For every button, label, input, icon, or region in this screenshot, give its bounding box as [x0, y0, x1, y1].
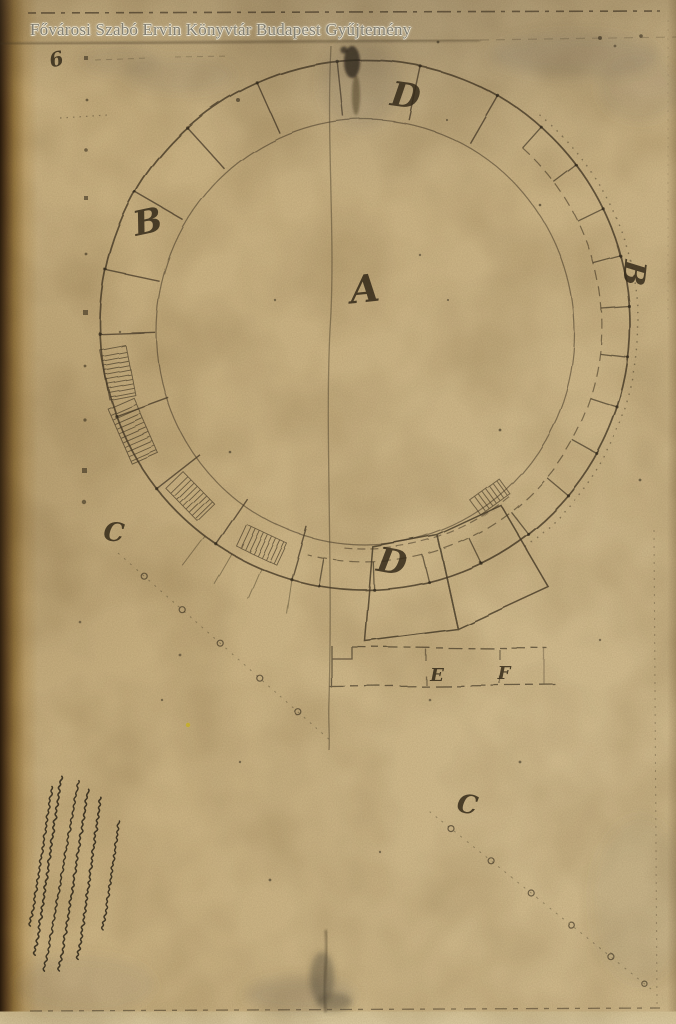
- scanned-plan-page: A D B B D C C E F 6 Fővárosi Szabó Ervin…: [0, 0, 676, 1024]
- paper-grain-texture: [0, 0, 676, 1024]
- plan-drawing: A D B B D C C E F 6: [0, 0, 676, 1024]
- library-watermark: Fővárosi Szabó Ervin Könyvtár Budapest G…: [30, 20, 411, 40]
